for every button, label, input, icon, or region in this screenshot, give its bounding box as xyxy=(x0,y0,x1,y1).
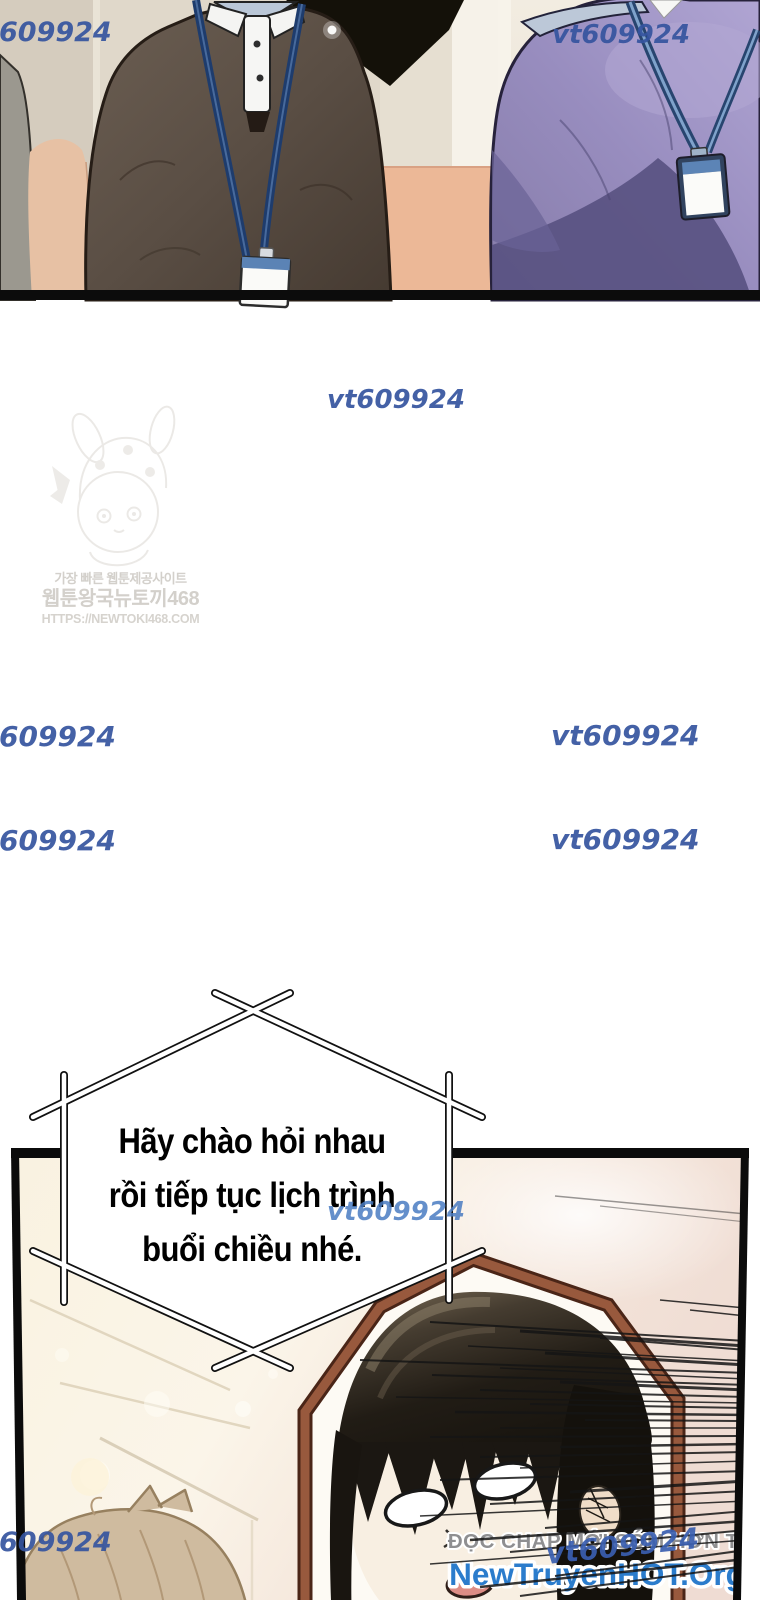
bubble-line-3: buổi chiều nhé. xyxy=(57,1222,447,1276)
panel-border-bottom xyxy=(0,290,760,300)
salmon-wall xyxy=(380,168,498,300)
watermark-row2-left: 609924 xyxy=(0,827,116,855)
watermark-middle: vt609924 xyxy=(327,387,465,413)
watermark-bottom-left: 609924 xyxy=(0,1529,112,1556)
site-logo-mascot xyxy=(50,404,179,565)
site-logo-url: HTTPS://NEWTOKI468.COM xyxy=(28,611,213,627)
skin-shape xyxy=(28,139,92,300)
watermark-bubble: vt609924 xyxy=(327,1199,465,1225)
bubble-line-1: Hãy chào hỏi nhau xyxy=(57,1114,447,1168)
watermark-row2-right: vt609924 xyxy=(551,826,700,854)
collar-placket xyxy=(244,16,270,112)
id-badge-right xyxy=(676,146,730,220)
site-logo-name: 웹툰왕국뉴토끼468 xyxy=(28,587,213,611)
site-logo: 가장 빠른 웹툰제공사이트 웹툰왕국뉴토끼468 HTTPS://NEWTOKI… xyxy=(28,570,213,627)
comic-artwork: ĐỌC CHAP MỚI SỚM HƠN TẠI NewTruyenHOT.Or… xyxy=(0,0,760,1600)
watermark-top-right: vt609924 xyxy=(552,22,690,48)
watermark-top-left: 609924 xyxy=(0,19,112,46)
webtoon-page: ĐỌC CHAP MỚI SỚM HƠN TẠI NewTruyenHOT.Or… xyxy=(0,0,760,1600)
speech-bubble-text: Hãy chào hỏi nhau rồi tiếp tục lịch trìn… xyxy=(57,1114,447,1276)
site-logo-tagline: 가장 빠른 웹툰제공사이트 xyxy=(28,570,213,587)
watermark-row1-left: 609924 xyxy=(0,723,116,751)
watermark-row1-right: vt609924 xyxy=(551,722,700,750)
